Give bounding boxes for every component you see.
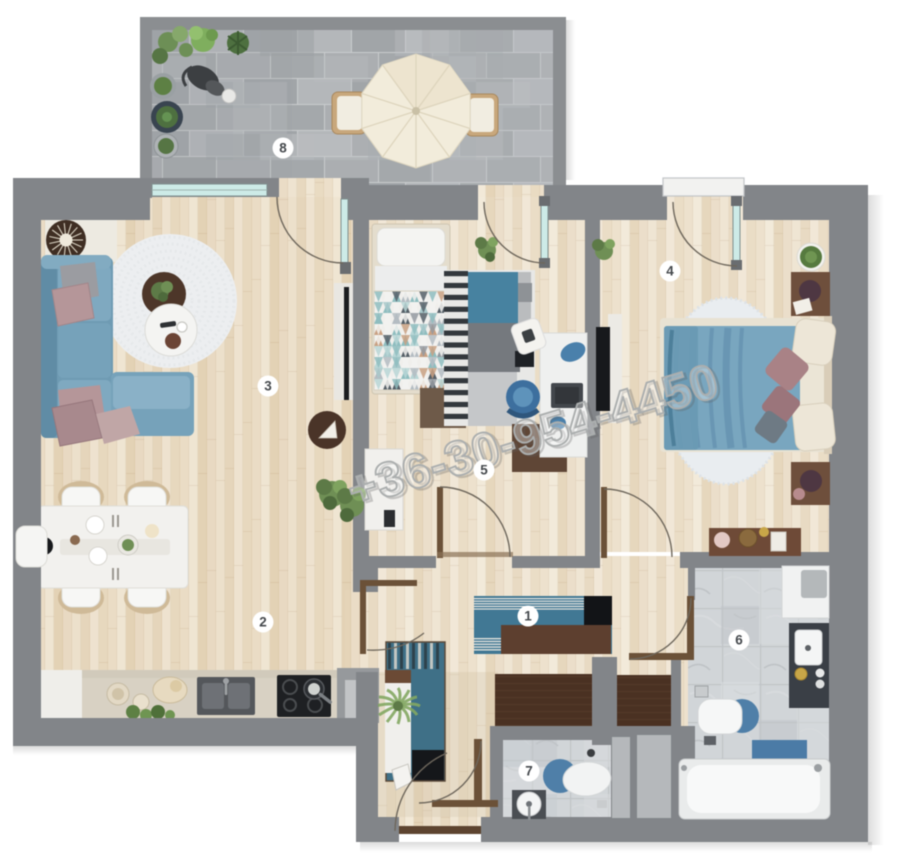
svg-text:2: 2 <box>259 615 267 630</box>
svg-text:3: 3 <box>264 379 272 394</box>
svg-text:4: 4 <box>666 264 674 279</box>
svg-text:5: 5 <box>480 463 488 478</box>
svg-text:8: 8 <box>279 141 287 156</box>
svg-text:1: 1 <box>524 609 532 624</box>
svg-text:7: 7 <box>525 764 533 779</box>
svg-text:6: 6 <box>735 633 743 648</box>
